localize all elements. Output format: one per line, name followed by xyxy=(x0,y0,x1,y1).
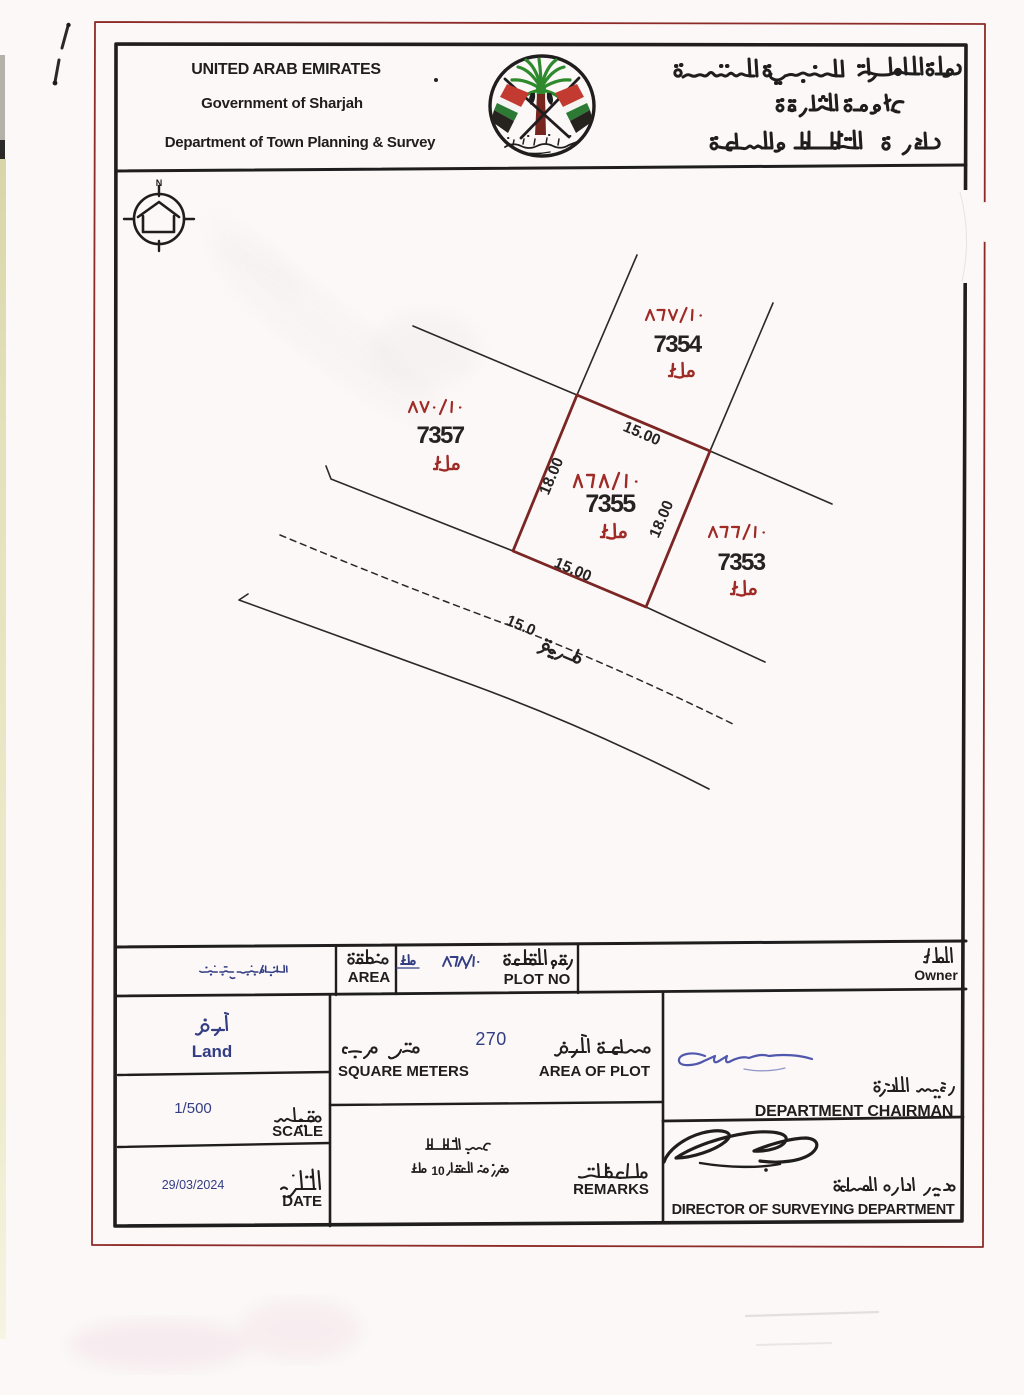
svg-text:7353: 7353 xyxy=(718,549,766,576)
svg-text:Owner: Owner xyxy=(914,967,958,983)
svg-text:PLOT NO: PLOT NO xyxy=(504,971,571,988)
svg-text:SQUARE METERS: SQUARE METERS xyxy=(338,1063,469,1080)
svg-text:7355: 7355 xyxy=(585,490,636,518)
svg-text:29/03/2024: 29/03/2024 xyxy=(162,1178,225,1192)
svg-text:REMARKS: REMARKS xyxy=(573,1181,649,1198)
svg-text:DEPARTMENT CHAIRMAN: DEPARTMENT CHAIRMAN xyxy=(755,1103,954,1120)
svg-text:Land: Land xyxy=(192,1042,233,1061)
svg-text:AREA OF PLOT: AREA OF PLOT xyxy=(539,1063,650,1080)
svg-text:270: 270 xyxy=(475,1029,506,1049)
svg-text:1/500: 1/500 xyxy=(174,1100,212,1117)
svg-text:AREA: AREA xyxy=(348,969,391,986)
svg-text:10: 10 xyxy=(431,1164,445,1178)
svg-text:N: N xyxy=(156,178,163,188)
svg-text:DATE: DATE xyxy=(282,1193,322,1210)
svg-text:SCALE: SCALE xyxy=(272,1123,323,1140)
svg-text:Government of Sharjah: Government of Sharjah xyxy=(201,95,363,112)
svg-text:UNITED ARAB EMIRATES: UNITED ARAB EMIRATES xyxy=(191,61,381,78)
svg-text:DIRECTOR OF SURVEYING DEPARTME: DIRECTOR OF SURVEYING DEPARTMENT xyxy=(672,1202,955,1218)
svg-text:7357: 7357 xyxy=(417,422,465,449)
svg-text:Department of Town Planning &: Department of Town Planning & Survey xyxy=(165,134,436,151)
svg-text:7354: 7354 xyxy=(654,331,703,358)
